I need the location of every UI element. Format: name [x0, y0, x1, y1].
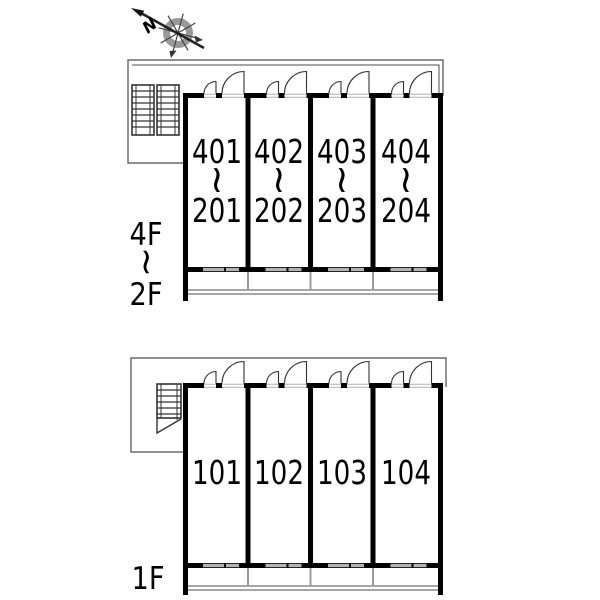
upper-floor-range-label: 4F ~ 2F [126, 217, 167, 313]
lower-balcony [188, 568, 438, 590]
unit-number: 201 [192, 191, 242, 230]
floorplan-page: N [0, 0, 600, 600]
door-arc-icon [204, 72, 244, 100]
window-icon [328, 564, 364, 567]
floorplan-drawing: N [0, 0, 600, 600]
upper-balcony [188, 272, 438, 294]
door-arc-icon [329, 72, 369, 100]
door-arc-icon [267, 362, 307, 390]
unit-number: 102 [254, 453, 304, 492]
window-icon [266, 268, 302, 271]
unit-number: 104 [381, 453, 431, 492]
floor-to: 2F [130, 277, 163, 313]
door-arc-icon [392, 72, 432, 100]
window-icon [266, 564, 302, 567]
unit-number: 203 [317, 191, 367, 230]
unit-number: 202 [254, 191, 304, 230]
window-icon [203, 268, 239, 271]
door-arc-icon [329, 362, 369, 390]
upper-stairs-icon [132, 85, 179, 135]
door-arc-icon [267, 72, 307, 100]
lower-stairs-icon [157, 384, 181, 433]
lower-floor-plan: 101 102 103 104 1F [131, 358, 446, 597]
unit-number: 101 [192, 453, 242, 492]
window-icon [391, 564, 427, 567]
unit-number: 204 [381, 191, 431, 230]
window-icon [328, 268, 364, 271]
floor-tilde: ~ [126, 247, 167, 277]
lower-floor-label: 1F [132, 561, 165, 597]
upper-floor-plan: 401 ~ 201 402 ~ 202 403 ~ 203 404 ~ 204 … [126, 60, 443, 313]
compass-icon: N [131, 8, 204, 58]
window-icon [391, 268, 427, 271]
north-label: N [139, 14, 162, 38]
window-icon [203, 564, 239, 567]
unit-number: 103 [317, 453, 367, 492]
door-arc-icon [204, 362, 244, 390]
door-arc-icon [392, 362, 432, 390]
